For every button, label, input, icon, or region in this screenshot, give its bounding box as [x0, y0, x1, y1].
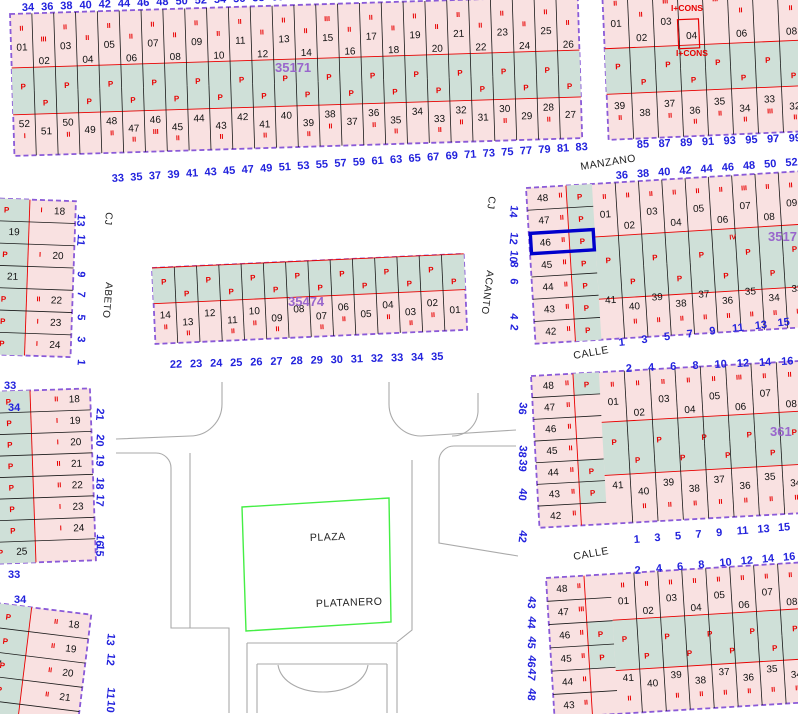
- floors-mark: II: [644, 581, 648, 588]
- cadastral-block-abeto-east[interactable]: P18IP19IP20IP21IP22IIP23IP24I: [0, 198, 76, 357]
- parcel-number[interactable]: 11: [235, 36, 246, 47]
- parcel-number[interactable]: 22: [475, 42, 487, 53]
- parcel-number[interactable]: 03: [60, 41, 72, 52]
- parcel-number[interactable]: 44: [193, 113, 205, 124]
- parcel-number[interactable]: 09: [191, 37, 203, 48]
- parcel-number[interactable]: 32: [455, 105, 467, 116]
- parcel-number[interactable]: 14: [160, 310, 172, 322]
- parcel-number[interactable]: 18: [69, 394, 81, 405]
- parcel-number[interactable]: 01: [618, 596, 630, 608]
- floors-mark: I: [60, 525, 62, 532]
- street-number: 35: [130, 171, 143, 184]
- parcel-number[interactable]: 41: [605, 295, 617, 307]
- floors-mark: II: [577, 583, 581, 590]
- parcel-number[interactable]: 01: [610, 19, 622, 30]
- parcel-number[interactable]: 43: [549, 489, 561, 501]
- parcel-number[interactable]: 05: [714, 590, 726, 602]
- parcel-number[interactable]: 34: [739, 103, 751, 114]
- street-number: 95: [745, 134, 758, 147]
- street-number: 45: [525, 636, 538, 650]
- parcel-number[interactable]: 45: [541, 260, 553, 272]
- street-outline: [116, 453, 229, 713]
- parcel-number[interactable]: 08: [170, 52, 182, 63]
- floors-mark: II: [386, 314, 390, 321]
- street-number: 33: [111, 172, 124, 185]
- parcel-number[interactable]: 37: [698, 289, 710, 301]
- parcel-number[interactable]: 04: [684, 404, 696, 416]
- parcel-number[interactable]: 20: [70, 437, 82, 448]
- parcel-number[interactable]: 28: [543, 102, 555, 113]
- street-number: 14: [506, 205, 520, 219]
- parcel-number[interactable]: 13: [278, 34, 290, 45]
- floors-mark: II: [626, 192, 630, 199]
- parcel-number[interactable]: 21: [7, 272, 19, 283]
- street-number: 33: [4, 380, 16, 392]
- street-number: 61: [371, 155, 384, 168]
- map-viewport[interactable]: PPPPPPPPPPPPPPPPPPPPPPPPPP01II02III03II0…: [0, 0, 798, 714]
- parcel-number[interactable]: 46: [545, 424, 557, 436]
- parcel-number[interactable]: 38: [324, 109, 336, 120]
- street-number: 42: [98, 0, 111, 11]
- floors-mark: II: [572, 510, 576, 517]
- parcel-number[interactable]: 04: [686, 31, 698, 42]
- street-number: 24: [210, 357, 224, 369]
- floors-mark: III: [741, 185, 747, 192]
- parcel-number[interactable]: 48: [556, 584, 568, 596]
- parcel-number[interactable]: 41: [259, 119, 271, 130]
- parcel-number[interactable]: 08: [786, 26, 798, 37]
- parcel-number[interactable]: 36: [368, 108, 380, 119]
- parcel-number[interactable]: 08: [786, 597, 798, 609]
- parcel-number[interactable]: 46: [150, 115, 162, 126]
- cadastral-block-calle-south[interactable]: PP48II47III46II45II44II43IIPPPPPPPPP01II…: [546, 562, 798, 714]
- cadastral-block-plaza-southwest[interactable]: P18IIP19IIP20IIP21IIP22II17: [0, 602, 91, 714]
- floors-mark: II: [661, 379, 665, 386]
- parcel-number[interactable]: 01: [600, 209, 612, 221]
- parcel-number[interactable]: 34: [790, 478, 798, 490]
- floors-mark: II: [54, 396, 58, 403]
- floors-mark: II: [642, 503, 646, 510]
- parcel-number[interactable]: 45: [560, 653, 572, 665]
- parcel-number[interactable]: 20: [62, 668, 75, 680]
- street-outline: [116, 382, 222, 439]
- parcel-number[interactable]: 35: [714, 96, 726, 107]
- parcel-number[interactable]: 47: [557, 607, 569, 619]
- street-number: 18: [93, 477, 106, 490]
- parcel-number[interactable]: 10: [213, 50, 225, 61]
- parcel-number[interactable]: 17: [366, 31, 378, 42]
- parcel-number[interactable]: 24: [73, 523, 85, 534]
- street-number: 38: [60, 0, 73, 12]
- parcel-number[interactable]: 12: [257, 49, 269, 60]
- street-number: 12: [737, 357, 750, 370]
- parcel-number[interactable]: 03: [660, 17, 672, 28]
- p-mark: P: [151, 78, 157, 87]
- parcel-number[interactable]: 13: [182, 317, 194, 329]
- parcel-number[interactable]: 48: [537, 193, 549, 205]
- parcel-number[interactable]: 40: [629, 301, 641, 313]
- parcel-number[interactable]: 02: [427, 298, 439, 310]
- parcel-number[interactable]: 46: [559, 630, 571, 642]
- parcel-number[interactable]: 48: [106, 116, 118, 127]
- floors-mark: II: [633, 318, 637, 325]
- floors-mark: II: [668, 113, 672, 120]
- street-number: 31: [351, 353, 364, 365]
- parcel-number[interactable]: 11: [227, 315, 238, 326]
- street-number: 34: [22, 2, 36, 14]
- floors-mark: I: [36, 341, 38, 348]
- floors-mark: II: [561, 237, 565, 244]
- street-name-label: PLAZA: [310, 531, 346, 544]
- parcel-number[interactable]: 40: [638, 486, 650, 498]
- parcel-number[interactable]: 23: [497, 27, 509, 38]
- parcel-number[interactable]: 20: [432, 44, 444, 55]
- p-mark: P: [348, 89, 354, 98]
- parcel-number[interactable]: 07: [761, 587, 773, 599]
- floors-mark: II: [409, 320, 413, 327]
- p-mark: P: [43, 98, 49, 107]
- parcel-number[interactable]: 38: [689, 483, 701, 495]
- street-number: 21: [93, 408, 106, 421]
- parcel-number[interactable]: 50: [62, 117, 74, 128]
- parcel-number[interactable]: 44: [562, 677, 574, 689]
- parcel-number[interactable]: 41: [622, 673, 634, 685]
- p-mark: P: [9, 483, 15, 492]
- parcel-number[interactable]: 06: [338, 302, 350, 314]
- parcel-number[interactable]: 47: [544, 402, 556, 414]
- parcel-number[interactable]: 42: [237, 112, 249, 123]
- street-number: 12: [507, 232, 520, 246]
- parcel-number[interactable]: 08: [763, 212, 775, 224]
- parcel-number[interactable]: 39: [651, 292, 663, 304]
- floors-mark: II: [675, 692, 679, 699]
- parcel-number[interactable]: 03: [666, 593, 678, 605]
- parcel-number[interactable]: 33: [434, 114, 446, 125]
- parcel-number[interactable]: 25: [540, 26, 552, 37]
- parcel-number[interactable]: 18: [54, 206, 66, 217]
- parcel-number[interactable]: 08: [785, 399, 797, 411]
- floors-mark: II: [636, 380, 640, 387]
- parcel-number[interactable]: 42: [545, 326, 557, 338]
- parcel-number[interactable]: 32: [789, 101, 798, 112]
- street-number: 44: [700, 163, 714, 176]
- street-number: 46: [721, 161, 734, 174]
- floors-mark: III: [41, 36, 47, 43]
- parcel-number[interactable]: 07: [147, 38, 159, 49]
- street-number: 51: [278, 161, 291, 174]
- cadastral-block-3517[interactable]: PPPPPPP48II47II46II45II44II43II42IIPPPPP…: [526, 171, 798, 344]
- p-mark: P: [130, 96, 136, 105]
- parcel-number[interactable]: 07: [316, 311, 328, 323]
- street-number: 16: [783, 551, 796, 564]
- parcel-number[interactable]: 01: [16, 42, 28, 53]
- parcel-number[interactable]: 51: [41, 126, 53, 137]
- parcel-number[interactable]: 39: [303, 118, 315, 129]
- parcel-number[interactable]: 05: [104, 40, 116, 51]
- floors-mark: II: [369, 15, 373, 22]
- floors-mark: I: [37, 319, 39, 326]
- street-number: 16: [781, 355, 794, 368]
- parcel-number[interactable]: 03: [646, 206, 658, 218]
- street-number: 85: [637, 138, 650, 151]
- parcel-number[interactable]: 05: [360, 309, 372, 321]
- parcel-number[interactable]: 02: [633, 407, 645, 419]
- parcel-number[interactable]: 19: [409, 30, 421, 41]
- parcel-number[interactable]: 05: [709, 391, 721, 403]
- parcel-number[interactable]: 47: [538, 215, 550, 227]
- parcel-number[interactable]: 27: [565, 110, 577, 121]
- floors-mark: II: [794, 495, 798, 502]
- parcel-number[interactable]: 31: [477, 112, 489, 123]
- parcel-number[interactable]: 39: [614, 101, 626, 112]
- street-number: 46: [525, 655, 538, 669]
- parcel-number[interactable]: 38: [675, 298, 687, 310]
- cadastral-block-35171[interactable]: PPPPPPPPPPPPPPPPPPPPPPPPPP01II02III03II0…: [10, 0, 582, 156]
- parcel-number[interactable]: 22: [72, 480, 84, 491]
- parcel-number[interactable]: 37: [713, 474, 725, 486]
- parcel-number[interactable]: 44: [547, 467, 559, 479]
- floors-mark: II: [569, 445, 573, 452]
- street-number: 62: [290, 0, 303, 3]
- parcel-number[interactable]: 38: [639, 108, 651, 119]
- floors-mark: II: [560, 215, 564, 222]
- parcel-number[interactable]: 02: [642, 605, 654, 617]
- parcel-number[interactable]: 05: [693, 203, 705, 215]
- street-number: 34: [411, 351, 425, 363]
- cadastral-block-plaza-west[interactable]: P18IIP19IP20IP21IIP22IIP23IP24IP25: [0, 388, 96, 564]
- parcel-number[interactable]: 01: [607, 397, 619, 409]
- p-mark: P: [792, 624, 798, 633]
- parcel-number[interactable]: 19: [65, 643, 78, 655]
- parcel-number[interactable]: 03: [658, 394, 670, 406]
- street-number: 35: [431, 351, 444, 363]
- parcel-number[interactable]: 21: [59, 692, 72, 704]
- floors-mark: I: [57, 439, 59, 446]
- floors-mark: II: [503, 118, 507, 125]
- parcel-number[interactable]: 06: [126, 53, 138, 64]
- floors-mark: II: [435, 24, 439, 31]
- parcel-number[interactable]: 41: [612, 480, 624, 492]
- floors-mark: II: [57, 461, 61, 468]
- street-number: 9: [716, 527, 723, 539]
- parcel-number[interactable]: 47: [128, 123, 140, 134]
- floors-mark: II: [750, 311, 754, 318]
- parcel-number[interactable]: 12: [204, 308, 216, 320]
- parcel-number[interactable]: 18: [388, 45, 400, 56]
- parcel-number[interactable]: 35: [745, 286, 757, 298]
- parcel-number[interactable]: 22: [51, 295, 63, 306]
- p-mark: P: [108, 79, 114, 88]
- parcel-number[interactable]: 16: [344, 46, 356, 57]
- parcel-number[interactable]: 10: [249, 306, 261, 318]
- parcel-number[interactable]: 46: [540, 237, 552, 249]
- parcel-number[interactable]: 35: [390, 115, 402, 126]
- parcel-number[interactable]: 39: [670, 670, 682, 682]
- parcel-number[interactable]: 04: [82, 55, 94, 66]
- parcel-number[interactable]: 45: [546, 446, 558, 458]
- parcel-number[interactable]: 43: [215, 121, 227, 132]
- parcel-number[interactable]: 15: [322, 33, 334, 44]
- floors-mark: II: [613, 1, 617, 8]
- floors-mark: II: [372, 122, 376, 129]
- street-number: 60: [271, 0, 284, 4]
- street-outline: [439, 446, 518, 556]
- parcel-number[interactable]: 39: [663, 477, 675, 489]
- p-mark: P: [8, 462, 14, 471]
- parcel-number[interactable]: 36: [722, 295, 734, 307]
- floors-mark: II: [522, 21, 526, 28]
- floors-mark: II: [391, 25, 395, 32]
- parcel-number[interactable]: 23: [72, 501, 84, 512]
- parcel-number[interactable]: 37: [346, 117, 358, 128]
- street-outline: [452, 393, 478, 436]
- cadastral-block-361[interactable]: PPP48II47II46II45II44II43II42IIPPPPPPPPP…: [531, 361, 798, 528]
- parcel-number[interactable]: 04: [670, 217, 682, 229]
- parcel-number[interactable]: 45: [172, 122, 184, 133]
- floors-mark: II: [36, 296, 40, 303]
- parcel-number[interactable]: 34: [768, 293, 780, 305]
- street-number: 17: [93, 494, 106, 507]
- floors-mark: II: [692, 578, 696, 585]
- parcel-number[interactable]: 19: [8, 227, 20, 238]
- parcel-number[interactable]: 14: [301, 48, 313, 59]
- parcel-number[interactable]: 23: [50, 318, 62, 329]
- parcel-number[interactable]: 06: [735, 402, 747, 414]
- street-number: 9: [74, 271, 86, 278]
- p-mark: P: [217, 93, 223, 102]
- floors-mark: II: [788, 5, 792, 12]
- street-number: 4: [655, 563, 663, 576]
- parcel-number[interactable]: 36: [739, 481, 751, 493]
- street-number: 3: [654, 532, 661, 544]
- p-mark: P: [86, 97, 92, 106]
- parcel-number[interactable]: 06: [736, 28, 748, 39]
- street-number: 20: [93, 434, 106, 447]
- parcel-number[interactable]: 03: [405, 307, 417, 319]
- parcel-number[interactable]: 43: [544, 304, 556, 316]
- floors-mark: II: [57, 482, 61, 489]
- floors-mark: II: [275, 326, 279, 333]
- p-mark: P: [523, 83, 529, 92]
- cadastral-map-canvas[interactable]: PPPPPPPPPPPPPPPPPPPPPPPPPP01II02III03II0…: [0, 0, 798, 714]
- street-number: 3: [74, 336, 86, 343]
- street-number: 50: [764, 158, 777, 171]
- floors-mark: II: [693, 500, 697, 507]
- street-name-label: CJ: [484, 196, 497, 210]
- parcel-number[interactable]: 37: [718, 667, 730, 679]
- parcel-number[interactable]: 24: [519, 41, 531, 52]
- street-number: 42: [516, 530, 529, 544]
- p-mark: P: [501, 67, 507, 76]
- p-mark: P: [174, 94, 180, 103]
- parcel-number[interactable]: 36: [743, 672, 755, 684]
- parcel-number[interactable]: 07: [739, 201, 751, 213]
- parcel-number[interactable]: 02: [636, 33, 648, 44]
- street-number: 43: [525, 596, 538, 610]
- street-outline: [397, 460, 412, 642]
- floors-mark: II: [719, 187, 723, 194]
- parcel-number[interactable]: 36: [689, 105, 701, 116]
- parcel-number[interactable]: 06: [738, 600, 750, 612]
- parcel-number[interactable]: 19: [69, 416, 81, 427]
- parcel-number[interactable]: 09: [786, 198, 798, 210]
- street-number: 8: [692, 360, 699, 372]
- parcel-number[interactable]: 49: [84, 125, 96, 136]
- parcel-number[interactable]: 43: [563, 700, 575, 712]
- floors-mark: II: [649, 191, 653, 198]
- parcel-number[interactable]: 52: [19, 119, 31, 130]
- parcel-number[interactable]: 25: [16, 546, 28, 557]
- floors-mark: II: [765, 184, 769, 191]
- parcel-number[interactable]: 20: [52, 251, 64, 262]
- parcel-number[interactable]: 26: [563, 39, 575, 50]
- floors-mark: II: [739, 7, 743, 14]
- floors-mark: II: [110, 130, 114, 137]
- street-number: 13: [754, 319, 767, 332]
- parcel-number[interactable]: 09: [271, 313, 283, 325]
- parcel-number[interactable]: 18: [68, 619, 81, 631]
- street-number: 1: [633, 534, 640, 546]
- floors-mark: III: [736, 374, 742, 381]
- street-number: 55: [315, 158, 328, 171]
- parcel-number[interactable]: 44: [542, 282, 554, 294]
- floors-mark: II: [66, 132, 70, 139]
- parcel-number[interactable]: 38: [695, 675, 707, 687]
- parcel-number[interactable]: 30: [499, 104, 511, 115]
- parcel-number[interactable]: 07: [759, 388, 771, 400]
- floors-mark: II: [567, 326, 571, 333]
- parcel-number[interactable]: 02: [39, 56, 51, 67]
- parcel-number[interactable]: 35: [764, 472, 776, 484]
- parcel-number[interactable]: 21: [71, 459, 83, 470]
- parcel-number[interactable]: 40: [647, 678, 659, 690]
- street-number: 9: [709, 325, 716, 338]
- parcel-number[interactable]: 33: [764, 94, 776, 105]
- block-number-label: 3517: [768, 229, 797, 244]
- street-number: 25: [230, 357, 243, 369]
- parcel-number[interactable]: 04: [690, 603, 702, 615]
- street-number: 81: [557, 142, 570, 155]
- street-number: 11: [104, 687, 117, 700]
- parcel-number[interactable]: 34: [791, 669, 798, 681]
- street-outline: [257, 664, 387, 713]
- parcel-number[interactable]: 42: [550, 511, 562, 523]
- floors-mark: II: [216, 31, 220, 38]
- floors-mark: II: [132, 137, 136, 144]
- cadastral-block-manzano-north[interactable]: PPPPPPPP01II02II03III04III06II08II39II38…: [602, 0, 798, 140]
- street-number: 14: [759, 356, 773, 369]
- parcel-number[interactable]: 48: [543, 381, 555, 393]
- parcel-number[interactable]: 29: [521, 111, 533, 122]
- parcel-number[interactable]: 01: [449, 305, 461, 317]
- parcel-number[interactable]: 33: [791, 283, 798, 295]
- floors-mark: II: [564, 281, 568, 288]
- street-number: 56: [233, 0, 246, 5]
- parcel-number[interactable]: 35: [766, 664, 778, 676]
- parcel-number[interactable]: 40: [281, 111, 293, 122]
- floors-mark: II: [307, 131, 311, 138]
- p-mark: P: [6, 419, 12, 428]
- parcel-number[interactable]: 21: [453, 29, 465, 40]
- parcel-number[interactable]: 06: [717, 214, 729, 226]
- parcel-number[interactable]: 34: [412, 107, 424, 118]
- parcel-number[interactable]: 24: [49, 340, 61, 351]
- parcel-number[interactable]: 04: [382, 300, 394, 312]
- parcel-number[interactable]: 02: [624, 220, 636, 232]
- parcel-number[interactable]: 37: [664, 99, 676, 110]
- floors-mark: II: [580, 630, 584, 637]
- p-mark: P: [567, 82, 573, 91]
